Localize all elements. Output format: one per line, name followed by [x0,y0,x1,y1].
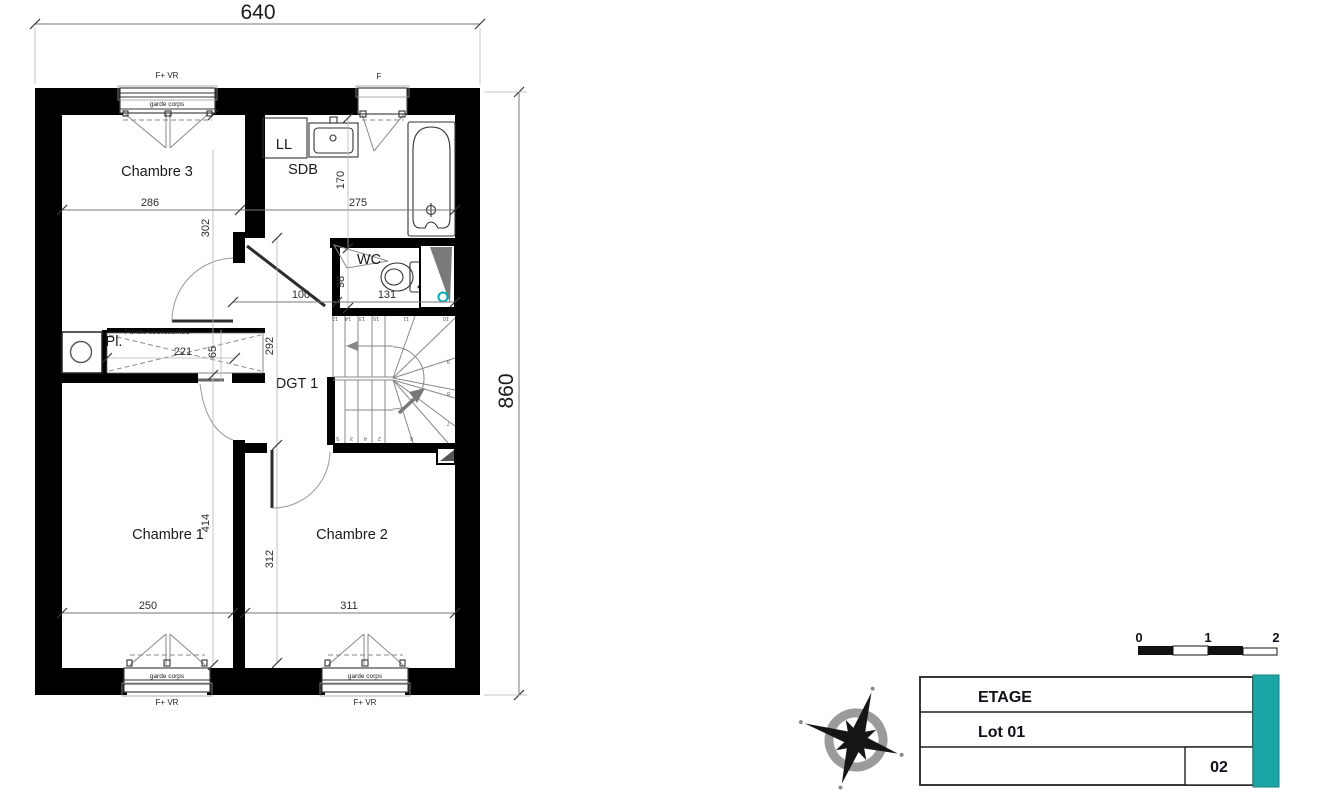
closet-water-heater [62,332,102,373]
staircase: 12 14 13 15 11 10 9 8 7 5 3 4 2 6 [332,315,455,443]
window-label-fvr-top: F+ VR [156,71,179,80]
dim-ch2-width: 311 [340,600,358,612]
guardrail-label: garde corps [348,673,383,680]
dim-ch2-height: 312 [264,550,276,568]
room-label-chambre2: Chambre 2 [316,527,388,543]
window-label-fvr-bottom-1: F+ VR [156,698,179,707]
svg-text:15: 15 [373,315,379,321]
svg-text:6: 6 [410,435,413,441]
washer-label: LL [276,137,292,153]
scale-label-2: 2 [1272,630,1279,645]
title-block: ETAGE Lot 01 02 [920,675,1279,787]
svg-text:4: 4 [364,435,367,441]
svg-text:12: 12 [332,315,338,321]
duct-wc [420,245,455,308]
room-label-chambre3: Chambre 3 [121,164,193,180]
dim-wc-height: 98 [335,276,347,288]
door-chambre1 [198,380,233,440]
accent-bar [1253,675,1279,787]
guardrail-label: garde corps [150,101,185,108]
dim-overall-height: 860 [495,373,518,408]
guardrail-label: garde corps [150,673,185,680]
door-sdb [247,246,325,306]
stair-up-arrow [346,341,358,351]
compass-rose-icon [783,668,921,800]
svg-text:9: 9 [447,358,450,364]
svg-text:11: 11 [403,315,409,321]
svg-text:14: 14 [345,315,351,321]
svg-text:3: 3 [350,435,353,441]
interior-walls [62,115,455,668]
window-ch2-bottom: garde corps [320,634,410,696]
title-block-level: ETAGE [978,689,1032,706]
window-ch3-top: garde corps [118,86,217,148]
dim-sdb-height: 170 [335,171,347,189]
dim-ch1-height: 414 [200,514,212,532]
svg-text:2: 2 [378,435,381,441]
duct-ch2 [437,448,455,464]
window-ch1-bottom: garde corps [122,634,212,696]
scale-bar: 0 1 2 [1135,630,1279,655]
room-label-wc: WC [357,252,381,268]
window-label-f-top: F [377,72,382,81]
floor-plan-sheet: garde corps F+ VR F garde corps F+ VR [0,0,1328,800]
svg-text:7: 7 [447,420,450,426]
sliding-doors-label: Portes coulissantes [124,327,189,336]
window-label-fvr-bottom-2: F+ VR [354,698,377,707]
sink-icon [309,117,358,157]
dim-dgt-height: 292 [264,337,276,355]
door-chambre2 [272,450,330,508]
room-label-dgt1: DGT 1 [276,376,318,392]
dim-ch1-width: 250 [139,600,157,612]
title-block-lot: Lot 01 [978,724,1025,741]
svg-text:10: 10 [443,315,449,321]
room-label-chambre1: Chambre 1 [132,527,204,543]
stair-tread-numbers: 12 14 13 15 11 10 9 8 7 5 3 4 2 6 [332,315,450,441]
dim-sdb-width: 275 [349,197,367,209]
title-block-sheet-number: 02 [1210,759,1228,776]
svg-text:5: 5 [336,435,339,441]
window-sdb-top [356,86,409,151]
dim-ch3-height: 302 [200,219,212,237]
door-chambre3 [172,258,233,321]
bathtub-icon [408,122,455,236]
svg-text:13: 13 [359,315,365,321]
dim-wc-width: 131 [378,289,396,301]
dim-placard-width: 221 [174,346,192,358]
dim-hall-width: 100 [292,289,310,301]
scale-label-1: 1 [1204,630,1211,645]
dim-placard-depth: 65 [207,346,219,358]
dim-overall-width: 640 [240,1,275,24]
dim-ch3-width: 286 [141,197,159,209]
room-label-placard: Pl. [106,334,123,350]
room-label-sdb: SDB [288,162,318,178]
svg-text:8: 8 [447,390,450,396]
scale-label-0: 0 [1135,630,1142,645]
